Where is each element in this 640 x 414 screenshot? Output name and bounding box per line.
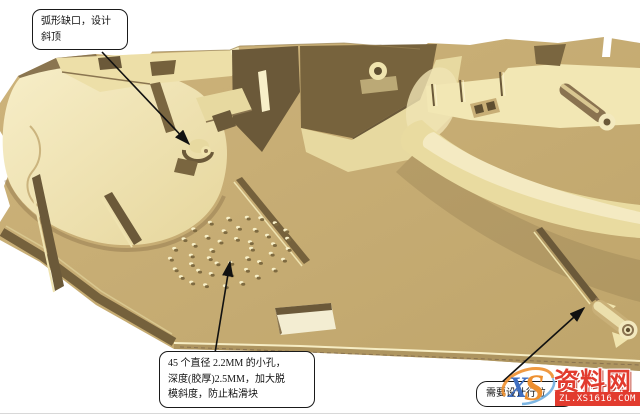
- watermark-url: ZL.XS1616.COM: [555, 392, 640, 406]
- screenshot-root: 弧形缺口，设计 斜顶 45 个直径 2.2MM 的小孔， 深度(胶厚)2.5MM…: [0, 0, 640, 414]
- logo-letter-s: S: [524, 368, 545, 409]
- watermark-logo-xs-icon: X S: [500, 360, 558, 412]
- cad-viewport: [0, 0, 640, 413]
- callout-arc-notch: 弧形缺口，设计 斜顶: [32, 9, 128, 50]
- watermark: X S 资料网 ZL.XS1616.COM: [500, 360, 640, 413]
- callout-vent-holes: 45 个直径 2.2MM 的小孔， 深度(胶厚)2.5MM，加大脱 模斜度，防止…: [159, 351, 315, 408]
